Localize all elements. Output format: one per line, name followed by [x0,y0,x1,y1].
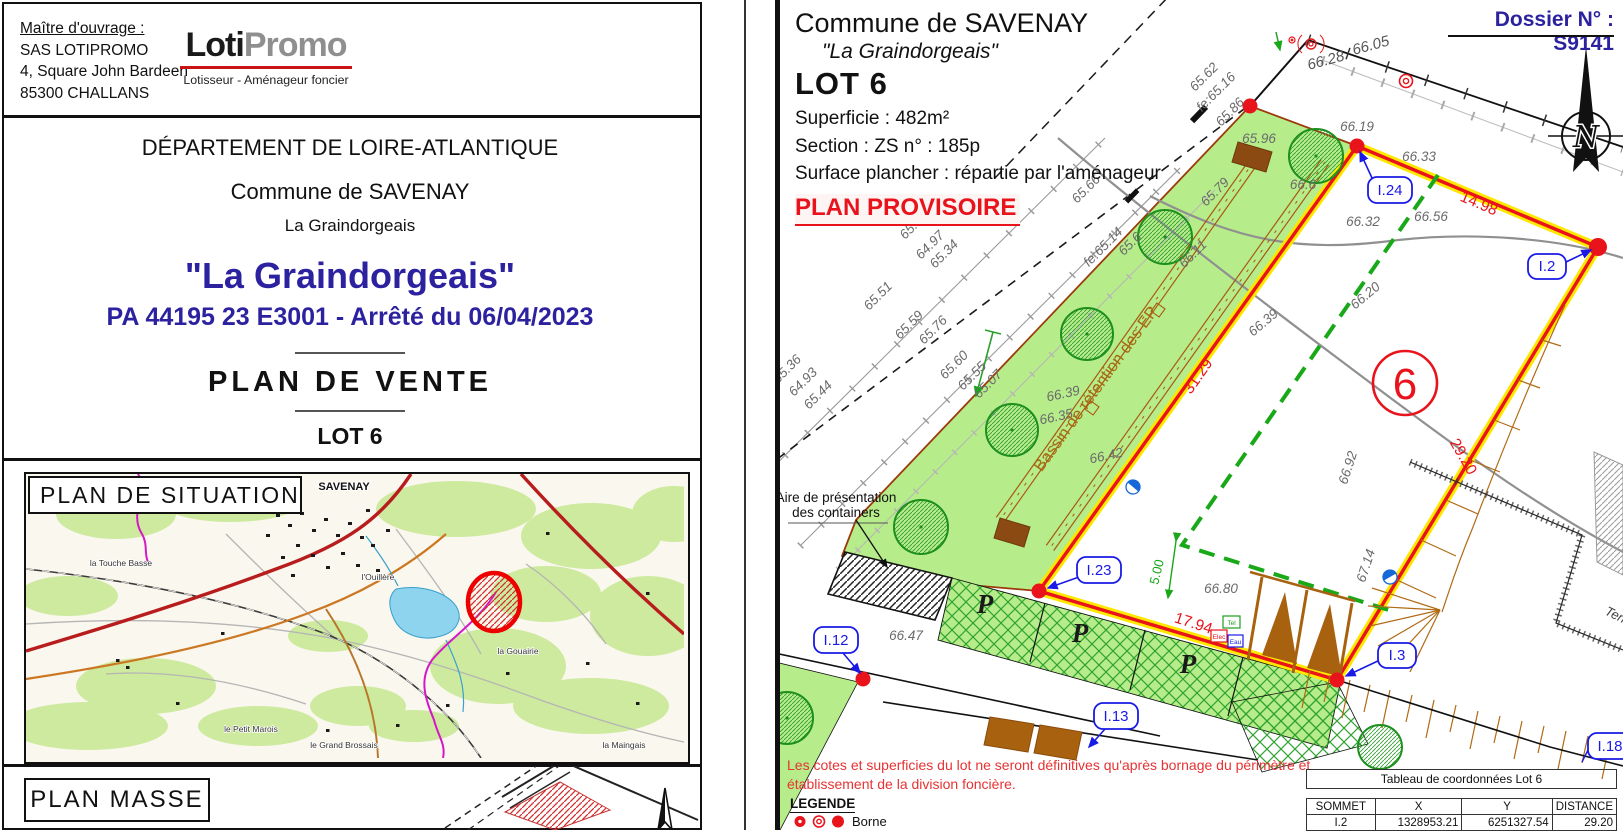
owner-city: 85300 CHALLANS [20,83,188,105]
project-title: "La Graindorgeais" [0,255,700,297]
note-line2: établissement de la division foncière. [787,776,1016,792]
parking-p: P [976,589,994,619]
vertex-label-I12: I.12 [823,632,848,649]
owner-address: 4, Square John Bardeen [20,61,188,83]
road-elevation: 66.05 [1351,32,1392,58]
coordinates-table-title: Tableau de coordonnées Lot 6 [1306,769,1617,789]
logo-tagline: Lotisseur - Aménageur foncier [176,73,356,87]
permit-line: PA 44195 23 E3001 - Arrêté du 06/04/2023 [0,303,700,332]
col-x: X [1375,799,1462,815]
plan-de-vente-sheet: { "left": { "owner_label": "Maître d'ouv… [0,0,1623,830]
table-header-row: SOMMET X Y DISTANCE [1307,799,1617,815]
lot-number-circle: 6 [1373,351,1437,415]
containers-label-line2: des containers [792,505,880,520]
section-divider [2,115,700,118]
provisional-stamp: PLAN PROVISOIRE [795,194,1020,226]
lot-area: Superficie : 482m² [795,108,949,130]
map-place-label: le Grand Brossais [310,740,378,750]
elevation-label: 66.33 [1402,149,1436,164]
situation-label: PLAN DE SITUATION [28,476,302,514]
eau-box-label: Eau [1230,639,1242,646]
section-divider [2,458,700,461]
north-letter: N [1572,120,1601,155]
vertex-label-I23: I.23 [1086,562,1111,579]
map-place-label: le Petit Marois [224,724,278,734]
sheet-edge-line [744,0,746,830]
masse-label: PLAN MASSE [24,778,210,822]
col-y: Y [1462,799,1552,815]
owner-block: Maître d'ouvrage : SAS LOTIPROMO 4, Squa… [20,18,188,104]
vertex-label-I24: I.24 [1377,182,1402,199]
elec-box-label: Elec [1213,634,1226,641]
elevation-label: 66.47 [889,628,923,643]
vertex-label-I3: I.3 [1389,647,1406,664]
cell-y: 6251327.54 [1462,815,1552,831]
map-place-label: la Touche Basse [90,558,152,568]
legend-title: LEGENDE [790,796,855,813]
map-town-label: SAVENAY [318,481,370,493]
masse-lot-hatch [505,782,610,830]
commune-title: Commune de SAVENAY [0,179,700,205]
plan-commune-title: Commune de SAVENAY [795,8,1088,39]
setback-dim: 5.00 [1146,558,1167,586]
plan-lot-title: LOT 6 [795,66,888,102]
borne-dot-icon [832,816,844,828]
legend-borne-label: Borne [852,814,887,829]
map-place-label: l'Ouillère [362,572,395,582]
owner-label: Maître d'ouvrage : [20,18,188,40]
cell-distance: 29.20 [1552,815,1616,831]
situation-map-svg: SAVENAY la Touche Basse l'Ouillère la Go… [26,474,684,758]
roadside-structures [984,717,1082,760]
walls [1410,452,1623,650]
map-place-label: la Gouairie [497,646,538,656]
doc-type: PLAN DE VENTE [0,366,700,399]
north-arrow: N [1548,46,1623,172]
plan-place-title: "La Graindorgeais" [822,40,998,64]
department-title: DÉPARTEMENT DE LOIRE-ATLANTIQUE [0,135,700,161]
elevation-label: 65.51 [861,279,896,314]
dossier-underline [1448,35,1614,37]
table-row: I.2 1328953.21 6251327.54 29.20 [1307,815,1617,831]
elevation-label: 65.96 [1242,131,1276,146]
legend-borne-row: Borne [792,814,887,829]
utility-connections: Tel Elec Eau [1211,616,1243,647]
containers-label-line1: Aire de présentation [779,490,896,505]
elevation-label: 66.80 [1204,581,1238,596]
site-marker-circle [468,573,520,631]
elevation-label: 66.6 [1290,177,1317,192]
elevation-label: 67.14 [1353,547,1378,584]
tel-box-label: Tel [1227,620,1236,627]
road-elevation: 66.28 [1306,47,1347,73]
lot-section: Section : ZS n° : 185p [795,136,980,158]
plan-masse-preview [210,766,700,830]
owner-name: SAS LOTIPROMO [20,40,188,62]
lotipromo-logo: LotiPromo Lotisseur - Aménageur foncier [176,26,356,87]
elevation-label: 66.56 [1414,209,1448,224]
cell-x: 1328953.21 [1375,815,1462,831]
terrain-label: Terr [1603,603,1623,627]
elevation-label: 66.32 [1346,214,1380,229]
vertex-label-I18: I.18 [1597,738,1622,755]
col-distance: DISTANCE [1552,799,1616,815]
parking-p: P [1071,618,1089,648]
rule [295,352,405,354]
parking-p: P [1179,649,1197,679]
col-sommet: SOMMET [1307,799,1376,815]
logo-part2: Promo [244,26,347,64]
borne-symbols [792,814,848,829]
vertex-label-I13: I.13 [1103,708,1128,725]
note-line1: Les cotes et superficies du lot ne seron… [787,757,1310,773]
masse-north-arrow [658,788,672,830]
map-place-label: la Maingais [603,740,646,750]
sheet-border [775,0,780,830]
elevation-label: 66.19 [1340,119,1374,134]
vertex-label-I2: I.2 [1539,258,1556,275]
lot-title: LOT 6 [0,423,700,450]
lot-number: 6 [1393,360,1417,409]
borne-double-circle-icon [814,816,825,827]
logo-underline [180,66,352,69]
logo-part1: Loti [186,26,244,64]
elevation-label: 66.20 [1347,279,1383,313]
rule [295,410,405,412]
elevation-label: 66.92 [1335,449,1360,486]
coordinates-table: Tableau de coordonnées Lot 6 SOMMET X Y … [1306,769,1617,831]
dossier-number: Dossier N° : S9141 [1448,8,1614,56]
situation-map: SAVENAY la Touche Basse l'Ouillère la Go… [24,472,690,764]
place-name: La Graindorgeais [0,216,700,236]
lot-surface: Surface plancher : répartie par l'aménag… [795,163,1161,185]
cell-sommet: I.2 [1307,815,1376,831]
